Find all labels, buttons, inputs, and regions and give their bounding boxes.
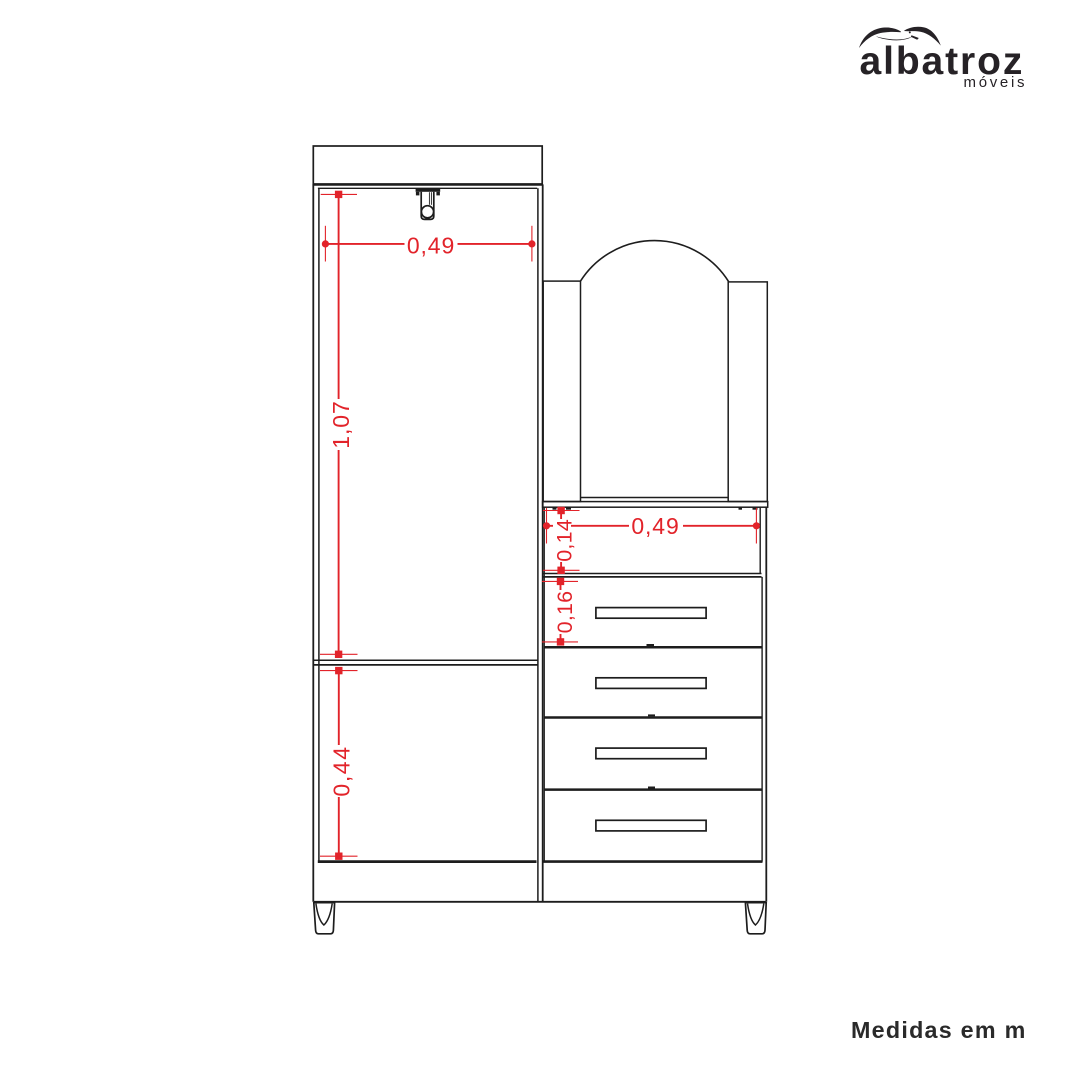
svg-text:0,49: 0,49 bbox=[407, 232, 455, 258]
svg-text:1,07: 1,07 bbox=[328, 400, 354, 448]
svg-text:0,14: 0,14 bbox=[552, 519, 576, 562]
svg-text:0,16: 0,16 bbox=[553, 591, 577, 634]
svg-text:0,44: 0,44 bbox=[329, 745, 355, 796]
svg-text:0,49: 0,49 bbox=[631, 513, 679, 539]
svg-text:móveis: móveis bbox=[964, 74, 1028, 91]
svg-text:Medidas em m: Medidas em m bbox=[851, 1017, 1027, 1043]
